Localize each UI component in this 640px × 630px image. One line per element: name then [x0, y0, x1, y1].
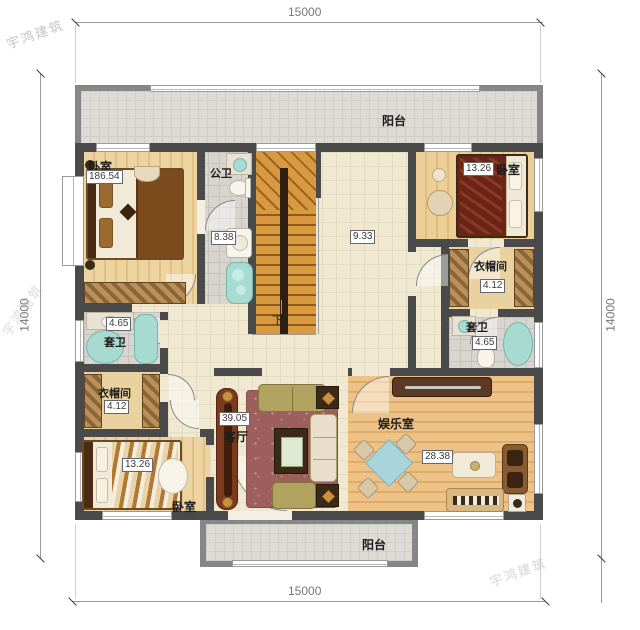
sofa-cushion-line — [313, 437, 336, 438]
door-opening — [197, 200, 205, 234]
shower — [503, 322, 533, 366]
dim-label-right: 14000 — [604, 298, 618, 331]
stairs-down-label: 下 — [272, 312, 283, 328]
coffee-table — [274, 428, 308, 474]
table-top — [281, 437, 303, 467]
window — [256, 143, 316, 152]
bed-headboard — [84, 442, 93, 508]
wall — [160, 312, 168, 320]
window — [534, 424, 543, 494]
armchair — [272, 482, 316, 509]
window — [424, 511, 504, 520]
bath-right-label: 套卫 — [466, 319, 488, 335]
keyboard-piano — [446, 488, 504, 512]
pillow — [509, 200, 522, 228]
wall — [84, 364, 160, 372]
dim-line-top — [75, 22, 543, 23]
closet-right-label: 衣帽间 — [474, 258, 507, 274]
sofa-cushion — [507, 450, 523, 466]
pillow — [99, 218, 113, 248]
speaker-unit — [508, 494, 526, 512]
round-chair — [158, 458, 188, 494]
extension-line — [75, 25, 76, 83]
wardrobe — [449, 249, 469, 307]
balcony-top — [75, 85, 543, 149]
bath-top-label: 公卫 — [210, 165, 232, 181]
entertainment-area: 28.38 — [422, 450, 453, 464]
bed-blanket — [136, 170, 182, 258]
hall-area: 9.33 — [350, 230, 375, 244]
wall — [390, 368, 543, 376]
console-knob — [222, 391, 233, 402]
entertainment-label: 娱乐室 — [378, 415, 414, 432]
dim-line-left — [40, 73, 41, 559]
game-piece — [470, 461, 480, 471]
dresser — [134, 166, 160, 182]
stair-open-edge — [318, 198, 319, 334]
pillow — [96, 478, 108, 503]
bath-top-area: 8.38 — [211, 231, 236, 245]
wardrobe-strip — [84, 282, 186, 304]
closet-right-area: 4.12 — [480, 279, 505, 293]
sofa — [502, 444, 528, 494]
tub-bubble — [236, 285, 246, 295]
wall — [498, 309, 534, 317]
sofa-cushion-line — [292, 387, 293, 411]
round-chair — [427, 190, 453, 216]
bath-right-area: 4.65 — [472, 336, 497, 350]
wall — [504, 239, 534, 247]
pillow — [96, 447, 108, 472]
wall — [200, 429, 214, 437]
table-accent — [322, 392, 335, 405]
window — [96, 143, 150, 152]
balcony-bottom-label: 阳台 — [362, 536, 386, 553]
balcony-top-window — [150, 85, 480, 92]
wardrobe — [514, 249, 534, 307]
table-accent — [322, 490, 335, 503]
floor-lamp — [432, 168, 446, 182]
closet-left-label: 衣帽间 — [98, 385, 131, 401]
dim-line-bottom — [72, 601, 546, 602]
wall — [408, 296, 416, 372]
bathtub — [134, 314, 158, 364]
window — [424, 143, 472, 152]
side-table — [316, 484, 339, 507]
wall — [316, 152, 321, 198]
dim-label-bottom: 15000 — [288, 584, 321, 598]
wall — [84, 304, 132, 312]
tv-bar — [405, 386, 481, 389]
sofa-cushion — [507, 472, 523, 488]
bath-left-area: 4.65 — [106, 317, 131, 331]
speaker-cone — [513, 499, 522, 508]
side-table — [316, 386, 339, 409]
floor-plan: 15000 15000 14000 14000 宇鸿建筑 宇鸿建筑 宇鸿建筑 阳… — [0, 0, 640, 630]
extension-line — [540, 25, 541, 83]
bedroom-bottom-left-label: 卧室 — [172, 498, 196, 515]
window — [75, 320, 84, 362]
bay-window — [62, 176, 84, 266]
sofa-cushion-line — [313, 459, 336, 460]
balcony-top-label: 阳台 — [382, 112, 406, 129]
sink-icon — [233, 158, 247, 172]
extension-line — [75, 524, 76, 599]
wall — [348, 368, 352, 376]
watermark: 宇鸿建筑 — [4, 14, 67, 52]
wall — [206, 477, 214, 520]
window — [534, 322, 543, 368]
closet-left-area: 4.12 — [104, 400, 129, 414]
wardrobe — [84, 374, 102, 428]
living-label: 客厅 — [224, 428, 248, 445]
dim-line-right — [601, 73, 602, 603]
piano-keys — [453, 496, 499, 505]
wall — [84, 429, 168, 437]
living-area: 39.05 — [219, 412, 250, 426]
tv-console — [216, 388, 238, 510]
dim-label-top: 15000 — [288, 5, 321, 19]
stairs-edge — [252, 334, 316, 335]
window — [102, 511, 172, 520]
bedroom-top-right-area: 13.26 — [463, 162, 494, 176]
bedroom-top-right-label: 卧室 — [496, 161, 520, 178]
wall — [206, 437, 214, 445]
main-sofa — [310, 414, 337, 482]
console-knob — [222, 497, 233, 508]
wall — [416, 239, 468, 247]
bath-left-label: 套卫 — [104, 334, 126, 350]
toilet-tank — [245, 178, 251, 198]
bedroom-top-left-area: 186.54 — [86, 170, 123, 184]
tub-bubble — [232, 269, 244, 281]
nightstand — [85, 260, 95, 270]
bedroom-bottom-left-area: 13.26 — [122, 458, 153, 472]
game-table — [452, 452, 496, 478]
bed-accent — [120, 204, 137, 221]
wardrobe — [142, 374, 160, 428]
tv-console — [392, 377, 492, 397]
window — [534, 158, 543, 212]
bathtub — [226, 262, 253, 304]
balcony-bottom-window — [232, 560, 388, 567]
door-opening — [228, 511, 292, 520]
wall — [214, 368, 262, 376]
wall — [160, 348, 168, 374]
wall — [408, 152, 416, 252]
